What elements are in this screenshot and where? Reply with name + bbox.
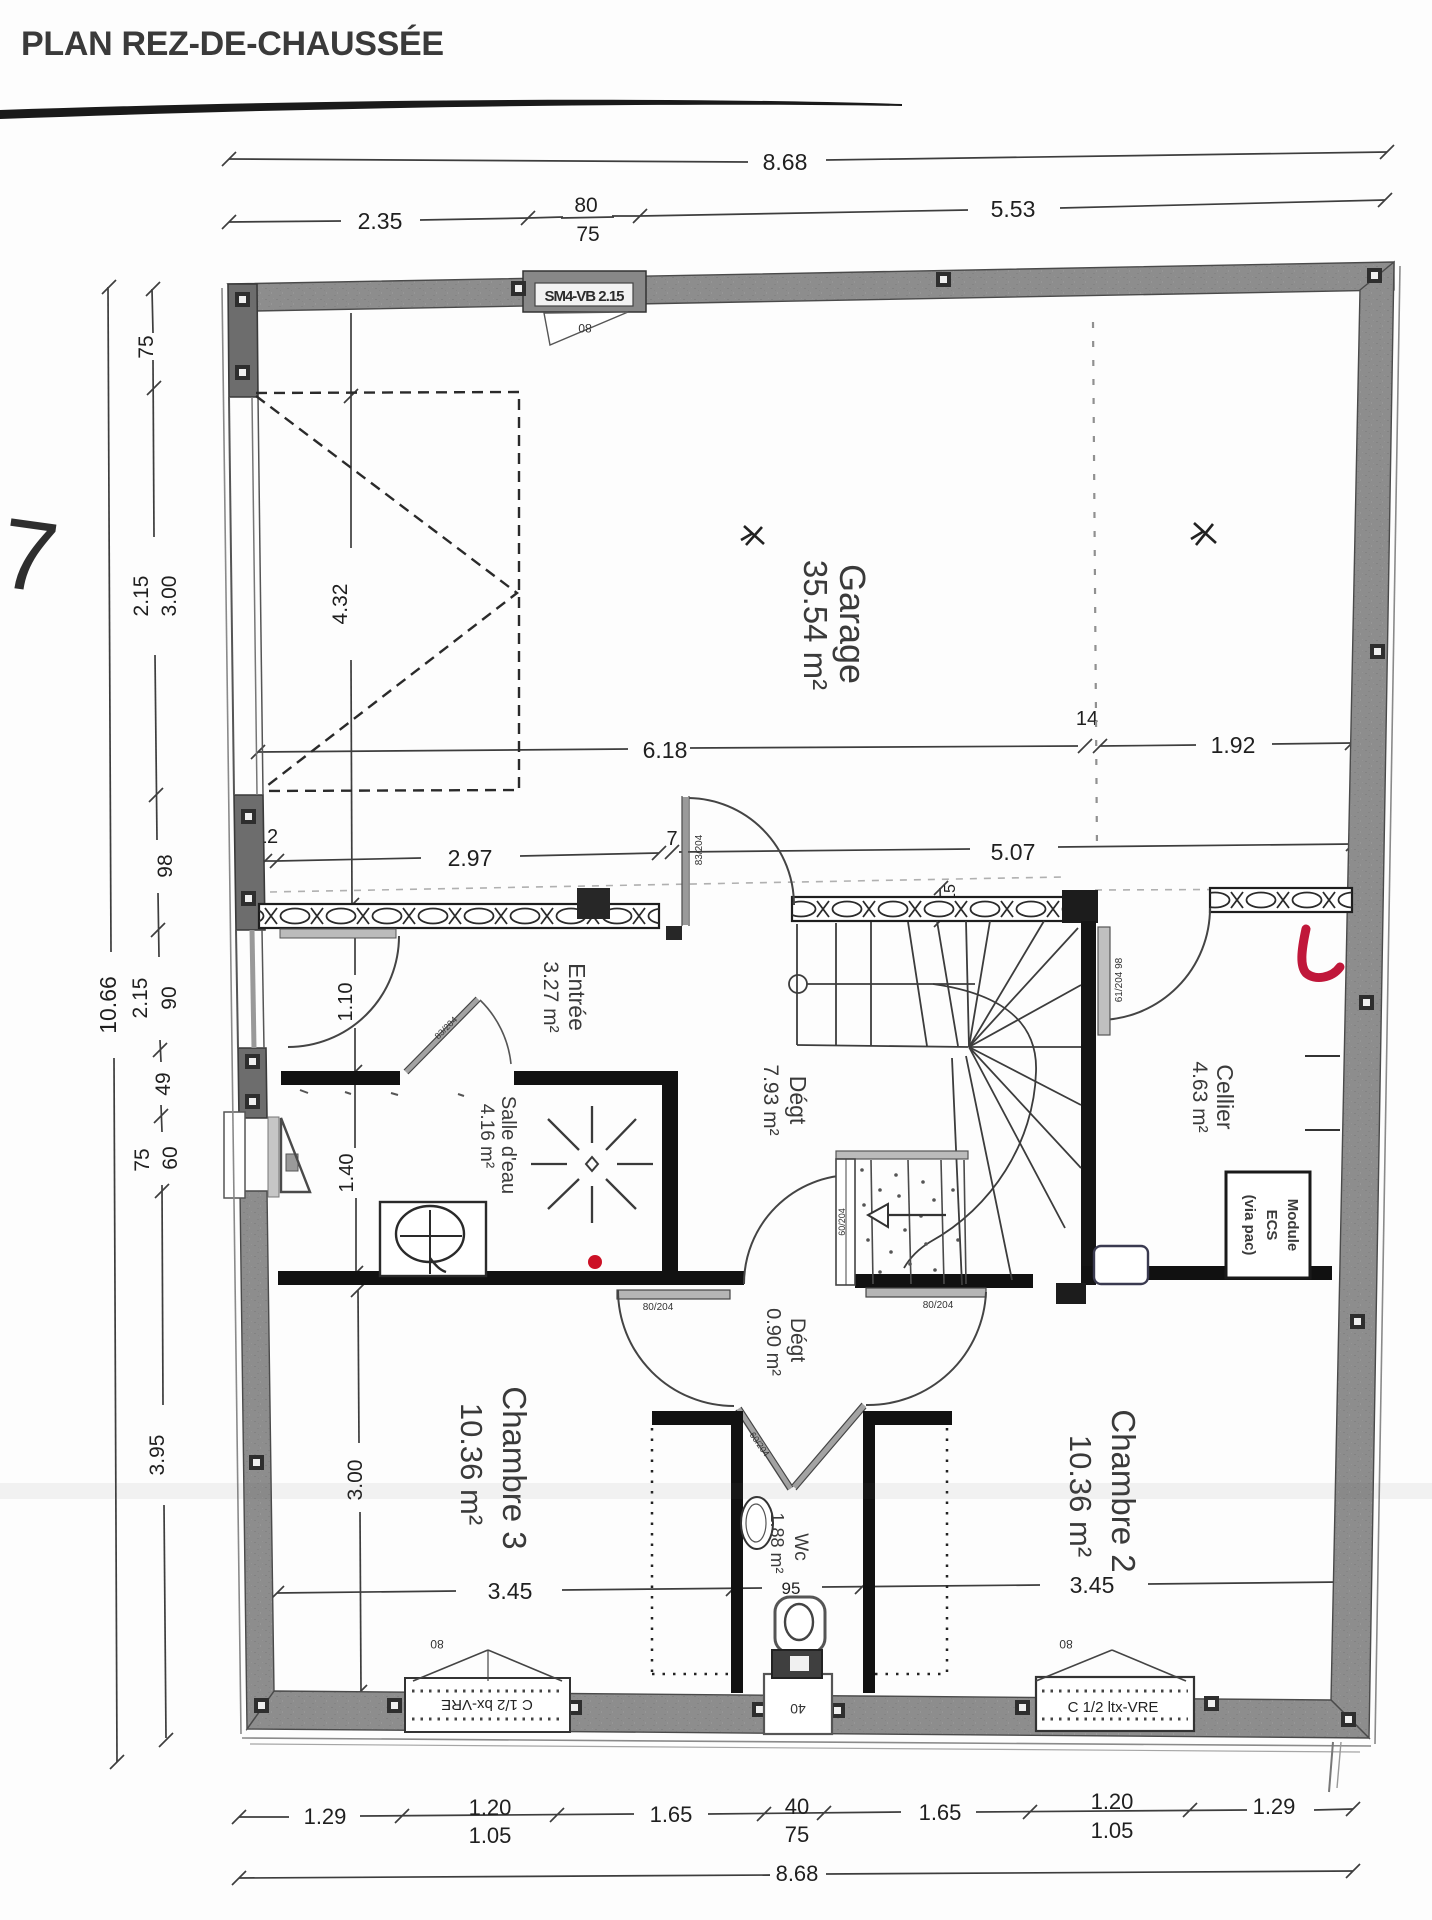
svg-text:75: 75 (576, 223, 599, 246)
svg-text:Dégt: Dégt (785, 1076, 811, 1125)
svg-text:1.20: 1.20 (469, 1795, 512, 1820)
svg-text:14: 14 (1076, 708, 1098, 730)
svg-text:Salle d'eau: Salle d'eau (497, 1096, 519, 1194)
svg-text:PLAN REZ-DE-CHAUSSÉE: PLAN REZ-DE-CHAUSSÉE (21, 25, 444, 63)
svg-text:80: 80 (574, 194, 597, 217)
svg-text:49: 49 (152, 1072, 175, 1095)
svg-text:1.20: 1.20 (1091, 1789, 1134, 1814)
svg-text:61/204 98: 61/204 98 (1114, 957, 1125, 1002)
svg-text:80/204: 80/204 (643, 1302, 674, 1313)
svg-text:1.29: 1.29 (1253, 1794, 1296, 1819)
svg-text:3.45: 3.45 (488, 1578, 533, 1604)
svg-text:3.95: 3.95 (146, 1435, 169, 1476)
svg-text:1.65: 1.65 (650, 1802, 693, 1827)
svg-text:Module: Module (1284, 1199, 1301, 1252)
svg-text:2.97: 2.97 (448, 845, 493, 871)
svg-text:10.36 m²: 10.36 m² (454, 1403, 489, 1525)
svg-text:98: 98 (154, 854, 177, 877)
svg-text:C 1/2 bx-VRE: C 1/2 bx-VRE (441, 1696, 533, 1713)
svg-text:6.18: 6.18 (643, 737, 688, 763)
svg-text:80/204: 80/204 (923, 1300, 954, 1311)
svg-text:1.88 m²: 1.88 m² (767, 1512, 787, 1573)
svg-text:80: 80 (1059, 1637, 1073, 1651)
svg-text:(via pac): (via pac) (1241, 1195, 1258, 1256)
svg-text:75: 75 (131, 1148, 154, 1171)
svg-text:75: 75 (785, 1822, 809, 1847)
svg-text:75: 75 (135, 335, 158, 358)
svg-text:40: 40 (790, 1701, 806, 1717)
svg-text:2.15: 2.15 (130, 576, 153, 617)
svg-text:Entrée: Entrée (564, 963, 590, 1031)
svg-text:1.05: 1.05 (469, 1823, 512, 1848)
svg-text:1.05: 1.05 (1091, 1818, 1134, 1843)
svg-text:90: 90 (158, 986, 181, 1009)
svg-text:8.68: 8.68 (763, 149, 808, 175)
svg-text:4.16 m²: 4.16 m² (476, 1104, 497, 1168)
svg-text:7: 7 (666, 828, 677, 850)
svg-text:C 1/2 ltx-VRE: C 1/2 ltx-VRE (1068, 1699, 1159, 1716)
svg-text:35.54 m²: 35.54 m² (797, 560, 834, 690)
svg-text:Wc: Wc (790, 1533, 811, 1560)
svg-text:3.00: 3.00 (158, 576, 181, 617)
svg-text:1.10: 1.10 (335, 983, 357, 1022)
svg-text:7.93 m²: 7.93 m² (759, 1064, 782, 1135)
svg-text:2.15: 2.15 (129, 978, 152, 1019)
svg-text:60: 60 (159, 1146, 182, 1169)
svg-text:ECS: ECS (1263, 1210, 1280, 1241)
svg-text:10.66: 10.66 (95, 976, 121, 1034)
svg-text:1.92: 1.92 (1211, 732, 1256, 758)
svg-text:1.65: 1.65 (919, 1800, 962, 1825)
svg-text:80: 80 (430, 1637, 444, 1651)
svg-text:1.29: 1.29 (304, 1804, 347, 1829)
svg-text:4.63 m²: 4.63 m² (1188, 1061, 1211, 1132)
svg-text:3.45: 3.45 (1070, 1572, 1115, 1598)
svg-text:8.68: 8.68 (776, 1861, 819, 1886)
svg-text:0.90 m²: 0.90 m² (762, 1308, 784, 1376)
svg-text:SM4-VB 2.15: SM4-VB 2.15 (544, 288, 624, 305)
svg-text:5.07: 5.07 (991, 839, 1036, 865)
svg-text:Chambre 3: Chambre 3 (496, 1386, 533, 1549)
svg-text:80: 80 (578, 321, 592, 335)
svg-text:Garage: Garage (832, 564, 873, 684)
svg-text:60/204: 60/204 (837, 1208, 847, 1236)
svg-text:3.27 m²: 3.27 m² (539, 961, 562, 1032)
svg-text:1.40: 1.40 (336, 1154, 358, 1193)
svg-text:83/204: 83/204 (694, 834, 705, 865)
svg-text:40: 40 (785, 1794, 809, 1819)
svg-text:4.32: 4.32 (329, 584, 352, 625)
svg-text:Dégt: Dégt (786, 1318, 809, 1363)
svg-text:95: 95 (782, 1579, 801, 1598)
svg-text:2.35: 2.35 (358, 208, 403, 234)
svg-text:5.53: 5.53 (991, 196, 1036, 222)
svg-text:Cellier: Cellier (1212, 1064, 1238, 1130)
